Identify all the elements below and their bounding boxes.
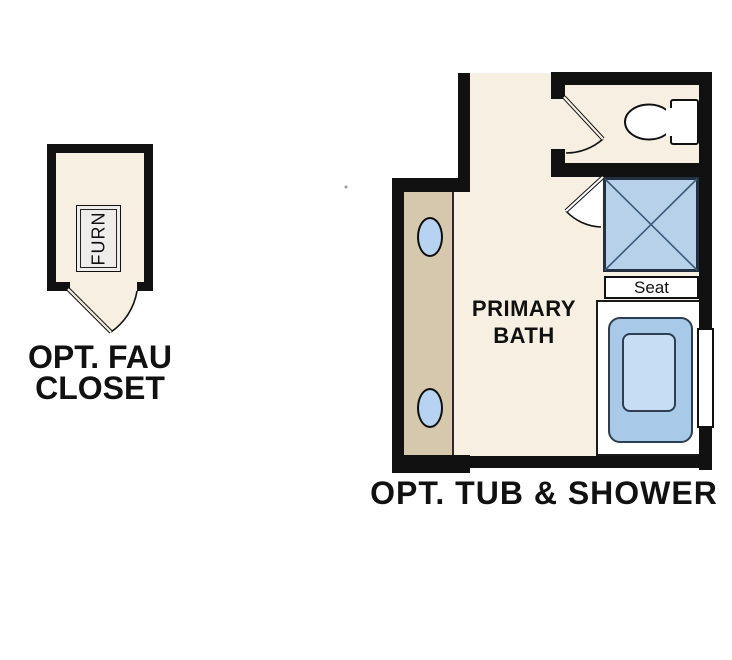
sink-oval-top [417,217,443,257]
fau-closet-door-opening [70,281,137,291]
wall-toilet-left-upper [551,72,565,99]
wall-right-upper [699,72,712,330]
wall-left [392,178,404,473]
furnace-label: FURN [88,212,109,266]
wall-shower-top [551,163,712,177]
shower-stall [603,177,699,272]
floor-plan-canvas: FURN Seat [0,0,732,660]
tub-shower-title: OPT. TUB & SHOWER [344,477,732,509]
sink-oval-bottom [417,388,443,428]
wall-toilet-top [551,72,712,85]
window-right-wall [697,328,714,428]
shower-seat: Seat [604,276,699,299]
plan-dot [345,186,348,189]
furnace-unit: FURN [76,205,121,272]
primary-bath-label-line1: PRIMARY [441,295,607,322]
fau-closet-label: OPT. FAU CLOSET [10,342,190,404]
primary-bath-label: PRIMARY BATH [441,295,607,349]
fau-closet-label-line1: OPT. FAU [10,342,190,373]
fau-closet-label-line2: CLOSET [10,373,190,404]
primary-bath-label-line2: BATH [441,322,607,349]
closet-door-swing [68,289,137,332]
bathtub-basin [622,333,676,412]
wall-entry-stub [458,73,470,192]
seat-label: Seat [634,278,669,297]
wall-bottom-right [470,456,712,468]
